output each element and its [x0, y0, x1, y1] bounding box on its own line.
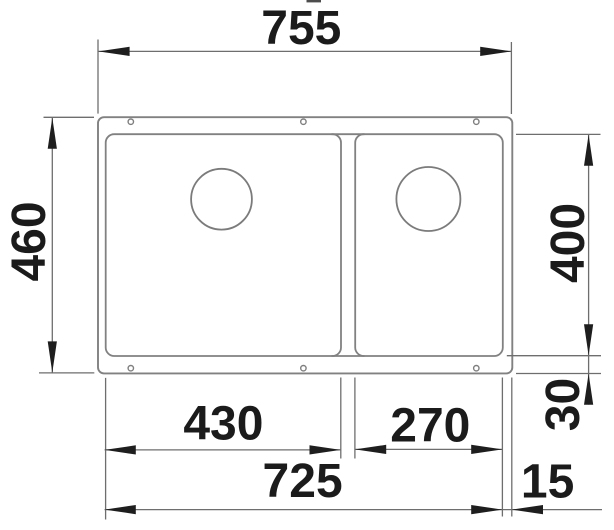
svg-text:755: 755	[261, 2, 341, 55]
svg-text:430: 430	[183, 398, 263, 451]
svg-text:400: 400	[542, 203, 595, 283]
svg-text:30: 30	[537, 378, 590, 431]
svg-text:460: 460	[3, 201, 56, 281]
svg-text:725: 725	[263, 455, 343, 508]
svg-text:15: 15	[521, 455, 574, 508]
svg-text:270: 270	[390, 399, 470, 452]
